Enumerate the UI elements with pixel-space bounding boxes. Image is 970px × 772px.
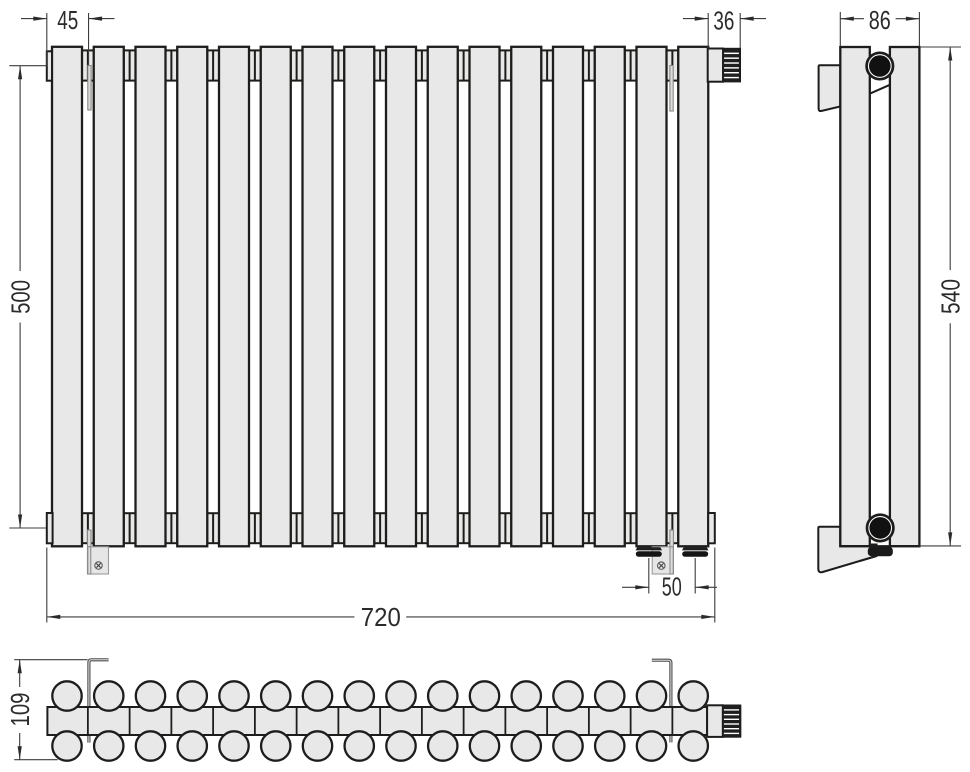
svg-text:45: 45 bbox=[57, 5, 78, 35]
svg-text:500: 500 bbox=[6, 280, 36, 314]
svg-text:540: 540 bbox=[936, 279, 966, 314]
svg-text:50: 50 bbox=[662, 572, 682, 602]
svg-text:86: 86 bbox=[869, 5, 891, 35]
svg-text:109: 109 bbox=[5, 693, 35, 727]
svg-text:720: 720 bbox=[361, 602, 401, 632]
svg-text:36: 36 bbox=[713, 5, 734, 35]
